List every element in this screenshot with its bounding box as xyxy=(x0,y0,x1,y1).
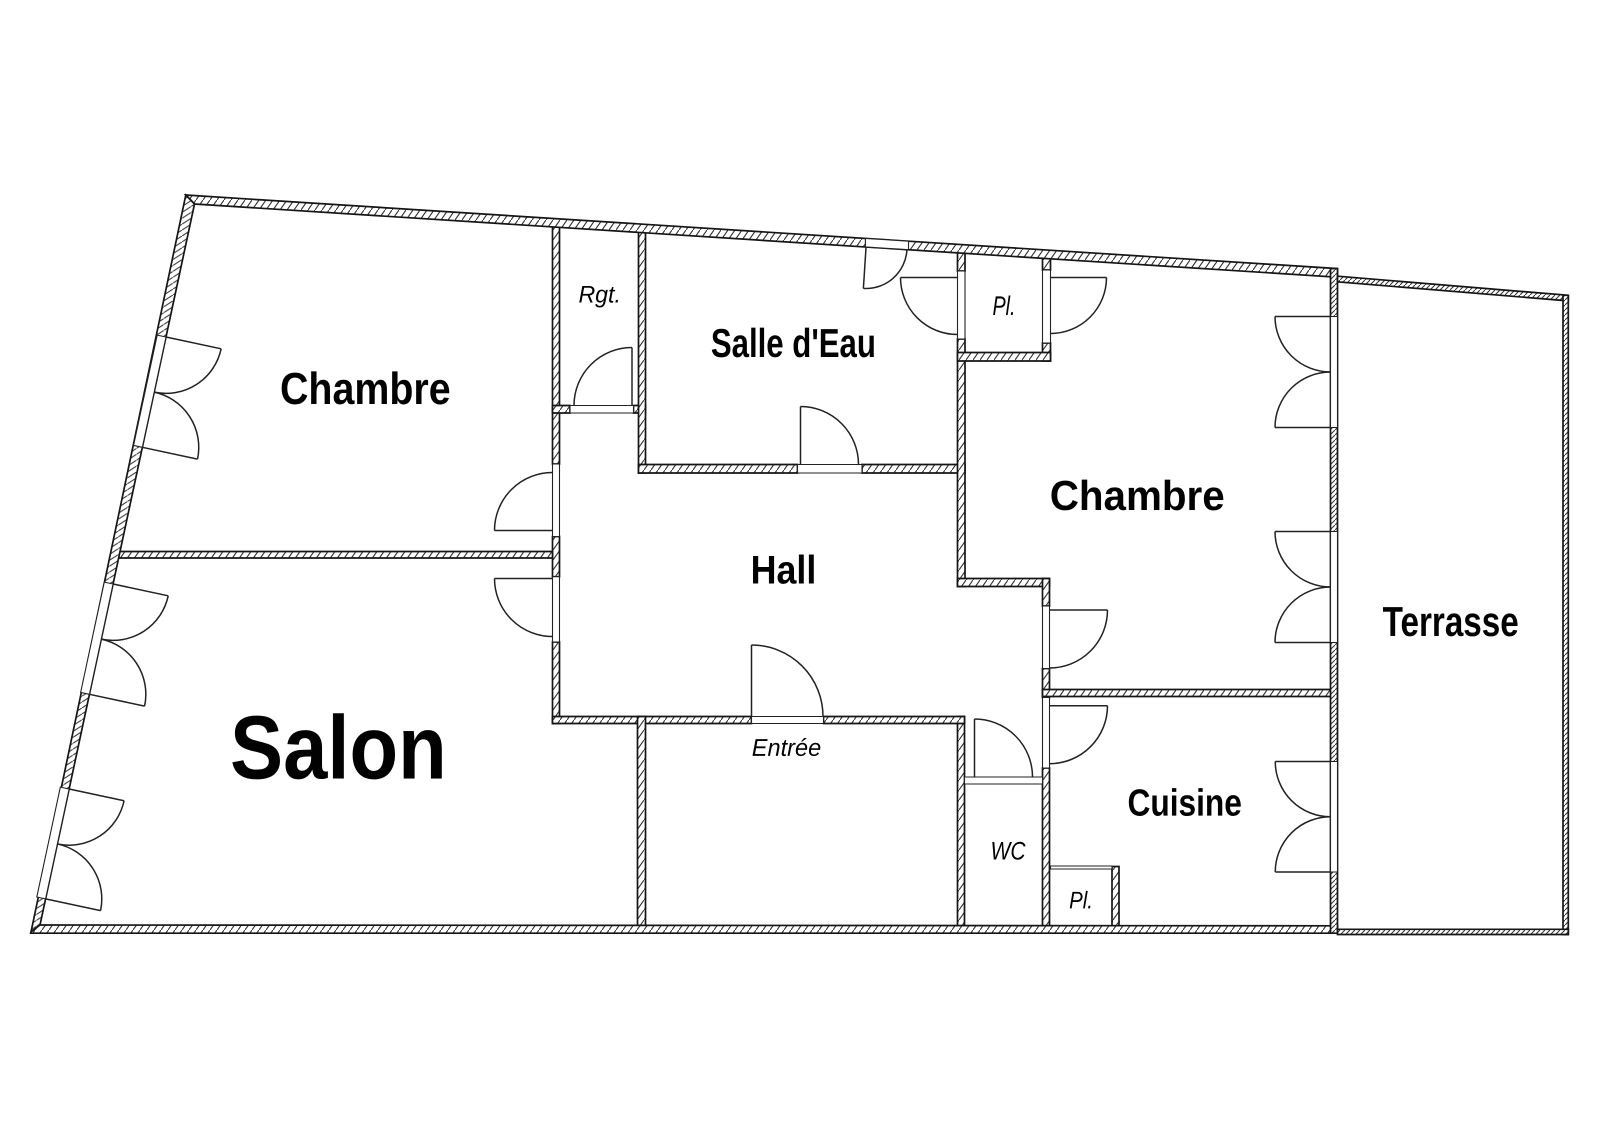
svg-text:Pl.: Pl. xyxy=(992,291,1015,321)
svg-text:Pl.: Pl. xyxy=(1069,887,1093,914)
svg-text:Chambre: Chambre xyxy=(1050,472,1225,519)
svg-text:Hall: Hall xyxy=(751,549,817,593)
svg-text:Chambre: Chambre xyxy=(280,363,451,414)
svg-text:Salon: Salon xyxy=(230,699,447,799)
svg-text:Rgt.: Rgt. xyxy=(578,281,621,308)
svg-text:Terrasse: Terrasse xyxy=(1383,598,1519,645)
svg-text:Salle d'Eau: Salle d'Eau xyxy=(711,320,876,366)
svg-text:WC: WC xyxy=(990,837,1026,865)
svg-text:Entrée: Entrée xyxy=(752,735,821,762)
svg-text:Cuisine: Cuisine xyxy=(1127,783,1241,825)
